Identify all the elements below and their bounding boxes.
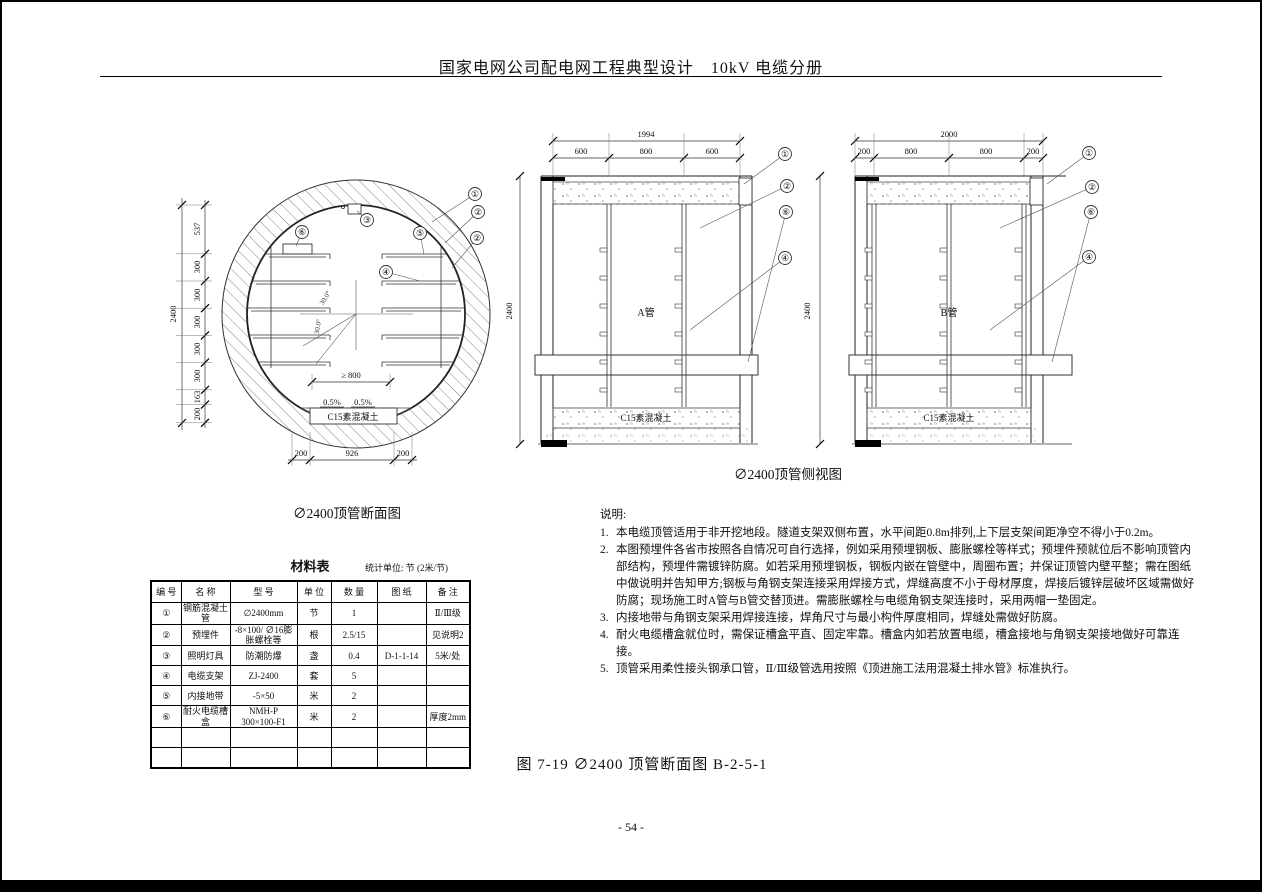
callout-leader <box>1052 212 1091 362</box>
callout-label: ① <box>781 149 789 159</box>
bracket-stub <box>675 332 682 336</box>
slope-label: 0.5% <box>323 397 341 407</box>
table-cell: 电缆支架 <box>181 666 230 686</box>
bracket-stub <box>1015 360 1022 364</box>
table-header-cell: 单 位 <box>297 581 331 603</box>
bracket-stub <box>600 388 607 392</box>
table-cell: 2 <box>331 706 377 728</box>
callout-label: ② <box>783 181 791 191</box>
bracket-stub <box>600 276 607 280</box>
table-header-cell: 编 号 <box>151 581 181 603</box>
table-cell <box>230 728 297 748</box>
bracket-stub <box>940 388 947 392</box>
note-number: 3. <box>600 610 616 627</box>
bracket-stub <box>940 304 947 308</box>
table-cell: 2.5/15 <box>331 624 377 646</box>
callout-label: ⑥ <box>782 207 790 217</box>
table-cell <box>181 748 230 769</box>
table-cell <box>331 728 377 748</box>
technical-drawing: 2400 537 300 300 300 300 300 163 200 200… <box>2 2 1260 532</box>
table-cell: NMH-P 300×100-F1 <box>230 706 297 728</box>
table-cell: 1 <box>331 603 377 625</box>
bracket-stub <box>600 304 607 308</box>
notes-title: 说明: <box>600 507 1200 524</box>
note-text: 耐火电缆槽盒就位时，需保证槽盒平直、固定牢靠。槽盒内如若放置电缆，槽盒接地与角钢… <box>616 627 1200 661</box>
note-text: 本电缆顶管适用于非开挖地段。隧道支架双侧布置，水平间距0.8m排列,上下层支架间… <box>616 525 1200 542</box>
callout-leader <box>690 258 785 330</box>
bracket-stub <box>865 360 872 364</box>
page-number: - 54 - <box>2 820 1260 835</box>
callout-leader <box>748 212 786 362</box>
table-cell <box>377 706 426 728</box>
table-cell <box>377 748 426 769</box>
concrete-label: C15素混凝土 <box>327 411 378 422</box>
trough-band <box>535 355 758 375</box>
table-cell: 见说明2 <box>426 624 470 646</box>
table-cell: D-1-1-14 <box>377 646 426 666</box>
callout-label: ③ <box>363 215 371 225</box>
table-row: ⑤内接地带-5×50米2 <box>151 686 470 706</box>
callout-label: ⑤ <box>416 228 424 238</box>
table-cell <box>151 728 181 748</box>
material-table: 编 号名 称型 号单 位数 量图 纸备 注 ①钢筋混凝土管∅2400mm节1Ⅱ/… <box>150 580 471 769</box>
side-view-b: 2000 200 800 800 200 2400 B管 C15素混凝土 <box>802 129 1072 447</box>
bracket-stub <box>865 248 872 252</box>
note-item: 4.耐火电缆槽盒就位时，需保证槽盒平直、固定牢靠。槽盒内如若放置电缆，槽盒接地与… <box>600 627 1200 661</box>
table-cell: ∅2400mm <box>230 603 297 625</box>
table-row: ①钢筋混凝土管∅2400mm节1Ⅱ/Ⅲ级 <box>151 603 470 625</box>
table-cell: ⑤ <box>151 686 181 706</box>
dim-label: 600 <box>706 146 719 156</box>
cross-section-drawing: 2400 537 300 300 300 300 300 163 200 200… <box>168 180 490 460</box>
dim-label: 600 <box>575 146 588 156</box>
table-cell <box>181 728 230 748</box>
callout-leader <box>990 257 1089 330</box>
table-cell: 5米/处 <box>426 646 470 666</box>
table-cell: -5×50 <box>230 686 297 706</box>
note-text: 内接地带与角钢支架采用焊接连接，焊角尺寸与最小构件厚度相同，焊缝处需做好防腐。 <box>616 610 1200 627</box>
callout-label: ④ <box>1085 252 1093 262</box>
table-cell <box>151 748 181 769</box>
bracket-stub <box>1015 332 1022 336</box>
note-text: 顶管采用柔性接头钢承口管，Ⅱ/Ⅲ级管选用按照《顶进施工法用混凝土排水管》标准执行… <box>616 661 1200 678</box>
table-cell: 防潮防爆 <box>230 646 297 666</box>
table-row <box>151 728 470 748</box>
bracket-stub <box>600 332 607 336</box>
bracket-stub <box>675 360 682 364</box>
dim-label-height: 2400 <box>504 303 514 320</box>
dim-label: 926 <box>346 448 359 458</box>
bracket-stub <box>1015 388 1022 392</box>
bracket-stub <box>675 248 682 252</box>
table-cell: 钢筋混凝土管 <box>181 603 230 625</box>
callout-label: ② <box>1088 182 1096 192</box>
dim-label: 200 <box>192 408 202 421</box>
bracket-stub <box>675 276 682 280</box>
table-cell <box>377 603 426 625</box>
bracket-stub <box>865 276 872 280</box>
bracket-stub <box>865 332 872 336</box>
table-cell <box>426 686 470 706</box>
note-text: 本图预埋件各省市按照各自情况可自行选择，例如采用预埋钢板、膨胀螺栓等样式；预埋件… <box>616 542 1200 610</box>
bracket-stub <box>940 360 947 364</box>
bracket-stub <box>675 304 682 308</box>
dim-label: 300 <box>192 316 202 329</box>
bracket-stub <box>600 360 607 364</box>
table-cell <box>426 666 470 686</box>
table-cell: 厚度2mm <box>426 706 470 728</box>
callout-label: ② <box>474 207 482 217</box>
table-header-cell: 名 称 <box>181 581 230 603</box>
callout-label: ④ <box>781 253 789 263</box>
corner-mark <box>855 440 881 447</box>
dim-label: 200 <box>858 146 871 156</box>
table-cell: 根 <box>297 624 331 646</box>
bracket-stub <box>865 304 872 308</box>
table-header-cell: 备 注 <box>426 581 470 603</box>
table-cell: Ⅱ/Ⅲ级 <box>426 603 470 625</box>
soil <box>545 428 750 444</box>
dim-label: 300 <box>192 343 202 356</box>
dim-label: 300 <box>192 370 202 383</box>
bracket-stub <box>600 248 607 252</box>
bracket-stub <box>675 388 682 392</box>
cable-trough-box <box>283 244 312 254</box>
notes-section: 说明: 1.本电缆顶管适用于非开挖地段。隧道支架双侧布置，水平间距0.8m排列,… <box>600 507 1200 678</box>
dim-label: 537 <box>192 223 202 236</box>
callout-label: ① <box>1085 148 1093 158</box>
dim-label-min-spacing: ≥ 800 <box>341 370 361 380</box>
document-page: 国家电网公司配电网工程典型设计 10kV 电缆分册 <box>0 0 1262 892</box>
dim-label: 163 <box>192 391 202 404</box>
table-header-cell: 数 量 <box>331 581 377 603</box>
table-cell <box>377 624 426 646</box>
table-cell: 米 <box>297 686 331 706</box>
table-cell <box>331 748 377 769</box>
side-view-a: 1994 600 800 600 2400 A管 C15素混凝土 <box>504 129 758 447</box>
note-number: 2. <box>600 542 616 610</box>
dim-label-height: 2400 <box>802 303 812 320</box>
table-cell <box>297 748 331 769</box>
table-cell <box>297 728 331 748</box>
bracket-stub <box>940 332 947 336</box>
dim-label: 200 <box>295 448 308 458</box>
table-cell: 内接地带 <box>181 686 230 706</box>
corner-mark <box>541 177 565 181</box>
table-row: ④电缆支架ZJ-2400套5 <box>151 666 470 686</box>
callout-label: ① <box>471 189 479 199</box>
dim-label: 300 <box>192 289 202 302</box>
note-number: 1. <box>600 525 616 542</box>
slope-label: 0.5% <box>354 397 372 407</box>
dim-label: 200 <box>1027 146 1040 156</box>
table-row: ⑥耐火电缆槽盒NMH-P 300×100-F1米2厚度2mm <box>151 706 470 728</box>
callout-label: ⑥ <box>298 227 306 237</box>
note-item: 5.顶管采用柔性接头钢承口管，Ⅱ/Ⅲ级管选用按照《顶进施工法用混凝土排水管》标准… <box>600 661 1200 678</box>
table-cell: 套 <box>297 666 331 686</box>
table-cell: ⑥ <box>151 706 181 728</box>
table-cell: -8×100/ ∅16膨胀螺栓等 <box>230 624 297 646</box>
table-cell <box>377 666 426 686</box>
dim-label: 300 <box>192 261 202 274</box>
pipe-a-label: A管 <box>637 306 654 319</box>
callout-leader <box>744 154 785 184</box>
table-cell: ② <box>151 624 181 646</box>
bracket-stub <box>940 248 947 252</box>
table-row: ②预埋件-8×100/ ∅16膨胀螺栓等根2.5/15见说明2 <box>151 624 470 646</box>
dim-label: 800 <box>980 146 993 156</box>
dim-label: 800 <box>640 146 653 156</box>
material-table-unit-note: 统计单位: 节 (2米/节) <box>365 561 448 574</box>
bracket-stub <box>1015 276 1022 280</box>
top-concrete-slab <box>867 182 1031 204</box>
figure-caption: 图 7-19 ∅2400 顶管断面图 B-2-5-1 <box>442 753 842 774</box>
callout-leader <box>1047 153 1089 184</box>
dim-label-total: 1994 <box>638 129 656 139</box>
table-cell: 照明灯具 <box>181 646 230 666</box>
table-header-cell: 型 号 <box>230 581 297 603</box>
concrete-label: C15素混凝土 <box>923 412 974 423</box>
dim-label: 800 <box>905 146 918 156</box>
table-cell: 预埋件 <box>181 624 230 646</box>
table-cell <box>377 686 426 706</box>
table-cell <box>426 728 470 748</box>
side-view-caption: ∅2400顶管侧视图 <box>698 463 878 483</box>
table-cell: 2 <box>331 686 377 706</box>
corner-mark <box>855 177 879 181</box>
note-number: 5. <box>600 661 616 678</box>
table-cell: 耐火电缆槽盒 <box>181 706 230 728</box>
table-cell: 节 <box>297 603 331 625</box>
note-item: 1.本电缆顶管适用于非开挖地段。隧道支架双侧布置，水平间距0.8m排列,上下层支… <box>600 525 1200 542</box>
pipe-end-cap <box>739 178 752 205</box>
corner-mark <box>541 440 567 447</box>
table-cell <box>230 748 297 769</box>
bracket-stub <box>940 276 947 280</box>
soil <box>860 428 1040 444</box>
bracket-stub <box>1015 248 1022 252</box>
table-row <box>151 748 470 769</box>
cross-section-caption: ∅2400顶管断面图 <box>257 502 437 522</box>
note-item: 3.内接地带与角钢支架采用焊接连接，焊角尺寸与最小构件厚度相同，焊缝处需做好防腐… <box>600 610 1200 627</box>
table-row: ③照明灯具防潮防爆盏0.4D-1-1-145米/处 <box>151 646 470 666</box>
table-cell <box>377 728 426 748</box>
bracket-stub <box>865 388 872 392</box>
material-table-title: 材料表 <box>255 556 365 575</box>
concrete-label: C15素混凝土 <box>620 412 671 423</box>
table-cell: ③ <box>151 646 181 666</box>
table-cell: 米 <box>297 706 331 728</box>
table-cell: ④ <box>151 666 181 686</box>
callout-label: ④ <box>382 267 390 277</box>
table-cell: ① <box>151 603 181 625</box>
table-cell: 0.4 <box>331 646 377 666</box>
trough-band <box>849 355 1072 375</box>
dim-label: 200 <box>397 448 410 458</box>
table-cell: 盏 <box>297 646 331 666</box>
top-concrete-slab <box>553 182 740 204</box>
table-cell: ZJ-2400 <box>230 666 297 686</box>
table-header-cell: 图 纸 <box>377 581 426 603</box>
note-item: 2.本图预埋件各省市按照各自情况可自行选择，例如采用预埋钢板、膨胀螺栓等样式；预… <box>600 542 1200 610</box>
callout-label: ⑥ <box>1087 207 1095 217</box>
callout-label: ② <box>473 233 481 243</box>
note-number: 4. <box>600 627 616 661</box>
table-cell: 5 <box>331 666 377 686</box>
pipe-end-cap <box>1030 178 1043 205</box>
